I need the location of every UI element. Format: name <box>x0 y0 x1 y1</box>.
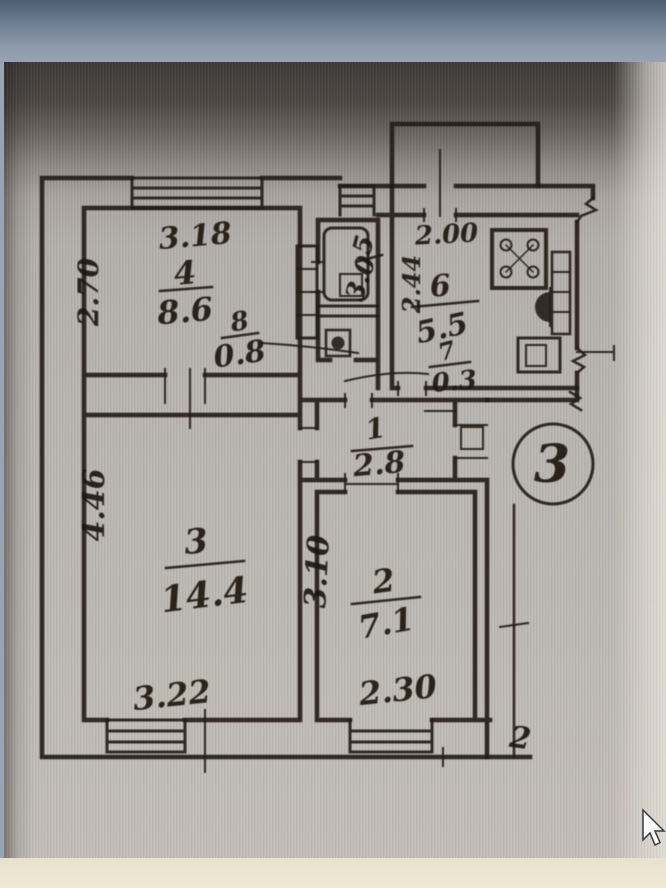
labels: 3.18 4 8.6 2.70 8 0.8 5 3.0 2.00 6 5.5 2… <box>72 216 533 757</box>
apartment-number-circle: 3 <box>513 424 593 504</box>
sink-icon <box>535 288 550 326</box>
closet8-area-label: 0.8 <box>211 334 268 376</box>
landing-chute-icon <box>518 338 560 372</box>
room4-top-dimension: 3.18 <box>157 216 233 257</box>
hall1-area-label: 2.8 <box>351 445 407 485</box>
radiator-icon <box>552 252 570 334</box>
hall1-number-label: 1 <box>363 411 388 447</box>
window-room4 <box>132 178 262 208</box>
room4-area-label: 8.6 <box>155 290 215 333</box>
living3-bottom-dimension: 3.22 <box>131 672 212 718</box>
window-room2 <box>350 720 432 752</box>
wall-break-marks <box>570 198 596 410</box>
kitchen6-left-dimension: 2.44 <box>397 255 426 314</box>
apartment-number-label: 3 <box>534 434 570 495</box>
kitchen6-number-label: 6 <box>428 268 452 305</box>
living3-area-label: 14.4 <box>158 569 250 621</box>
room2-bottom-dimension: 2.30 <box>356 667 438 713</box>
screen: 3 3.18 4 8.6 2.70 8 0.8 5 3.0 2.00 6 5.5… <box>0 0 666 888</box>
stove-icon <box>492 230 546 288</box>
kitchen6-top-dimension: 2.00 <box>413 218 479 251</box>
closet8-number-label: 8 <box>227 306 251 339</box>
bath-toilet-divider-wall <box>318 306 378 316</box>
window-room3 <box>107 720 185 752</box>
room4-left-dimension: 2.70 <box>72 257 105 327</box>
room2-number-label: 2 <box>369 561 397 602</box>
floorplan-drawing: 3 3.18 4 8.6 2.70 8 0.8 5 3.0 2.00 6 5.5… <box>0 0 666 888</box>
room4-number-label: 4 <box>172 253 197 293</box>
living3-left-dimension: 4.46 <box>77 468 112 541</box>
living3-number-label: 3 <box>183 521 210 563</box>
corner-mark-label: 2 <box>507 720 534 758</box>
balcony-top <box>392 124 538 186</box>
toilet7-area-label: 0.3 <box>430 365 478 399</box>
cursor-icon <box>643 810 664 845</box>
room2-left-dimension: 3.10 <box>298 534 337 609</box>
room2-area-label: 7.1 <box>355 600 416 647</box>
window-small-top <box>340 186 374 215</box>
interior-walls <box>84 186 577 757</box>
entry-door-leaf <box>461 427 483 449</box>
